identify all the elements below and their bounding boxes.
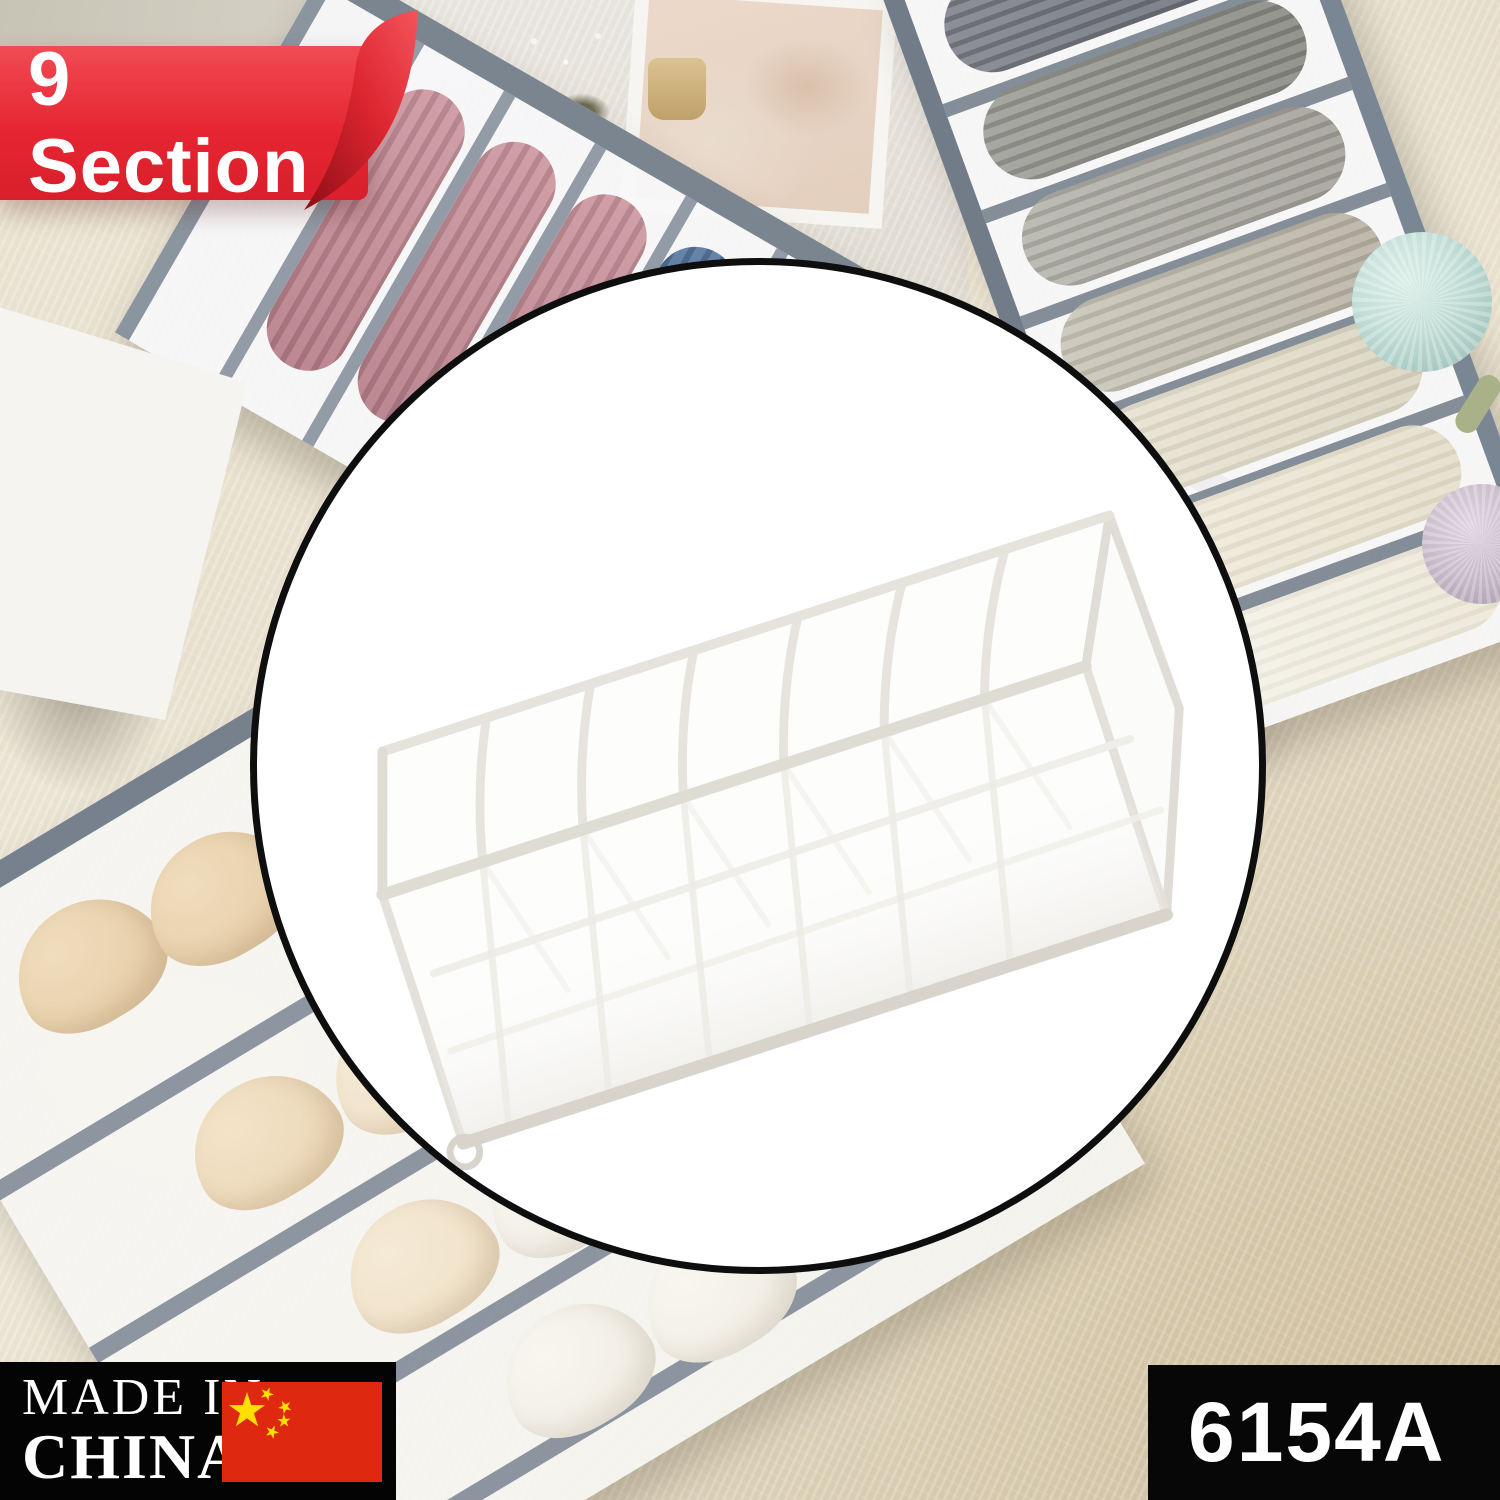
made-in-china-badge: MADE IN CHINA bbox=[0, 1362, 396, 1500]
flower-vase bbox=[648, 58, 706, 120]
product-code-label: 6154A bbox=[1188, 1365, 1446, 1500]
ribbon-fold-icon bbox=[296, 8, 426, 260]
mesh-organizer-product-drawing bbox=[257, 265, 1259, 1267]
product-hero-circle bbox=[250, 258, 1266, 1274]
teal-pompom-flower bbox=[1352, 232, 1492, 372]
product-code-badge: 6154A bbox=[1148, 1365, 1500, 1500]
product-image: 9 Section MADE IN CHINA bbox=[0, 0, 1500, 1500]
china-flag-icon bbox=[222, 1382, 382, 1482]
